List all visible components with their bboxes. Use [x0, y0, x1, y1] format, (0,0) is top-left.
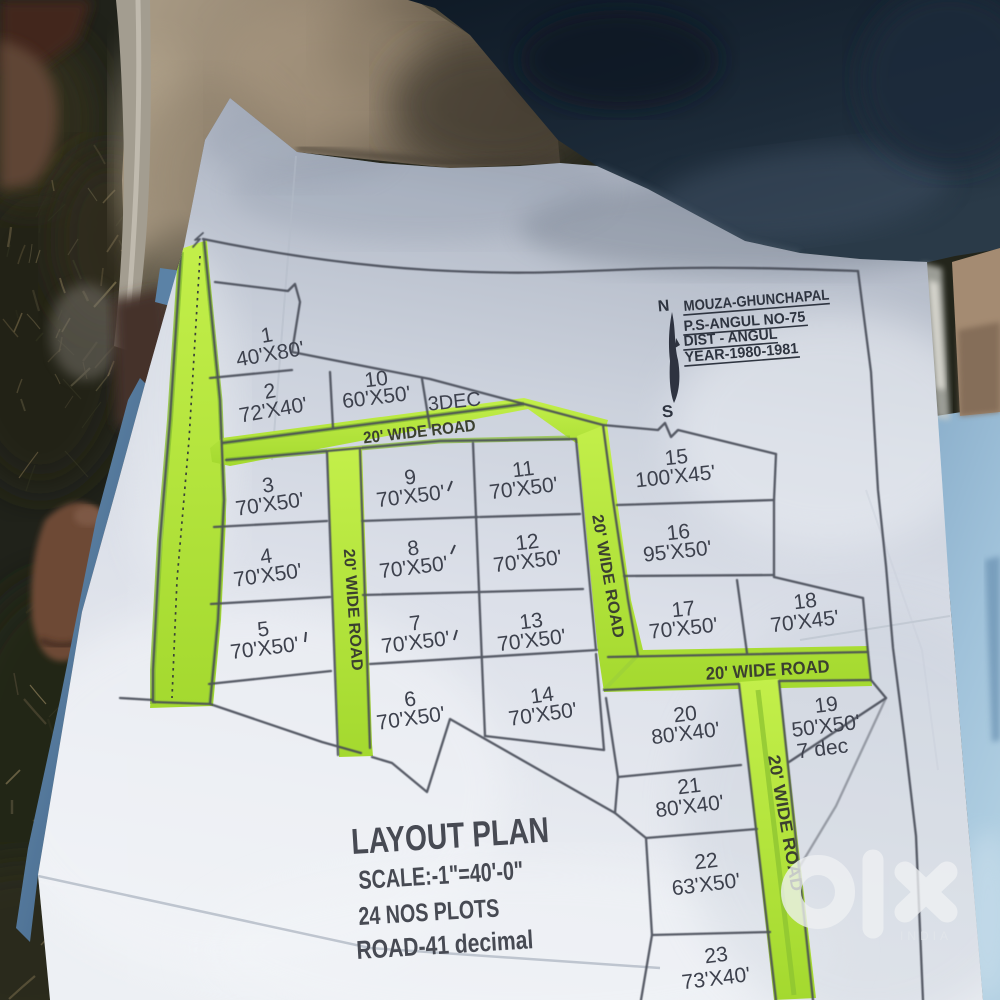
svg-text:N: N [657, 298, 670, 316]
svg-text:INDIA: INDIA [900, 929, 952, 943]
svg-text:22: 22 [693, 849, 719, 875]
svg-text:S: S [661, 402, 674, 422]
svg-text:23: 23 [703, 943, 729, 969]
